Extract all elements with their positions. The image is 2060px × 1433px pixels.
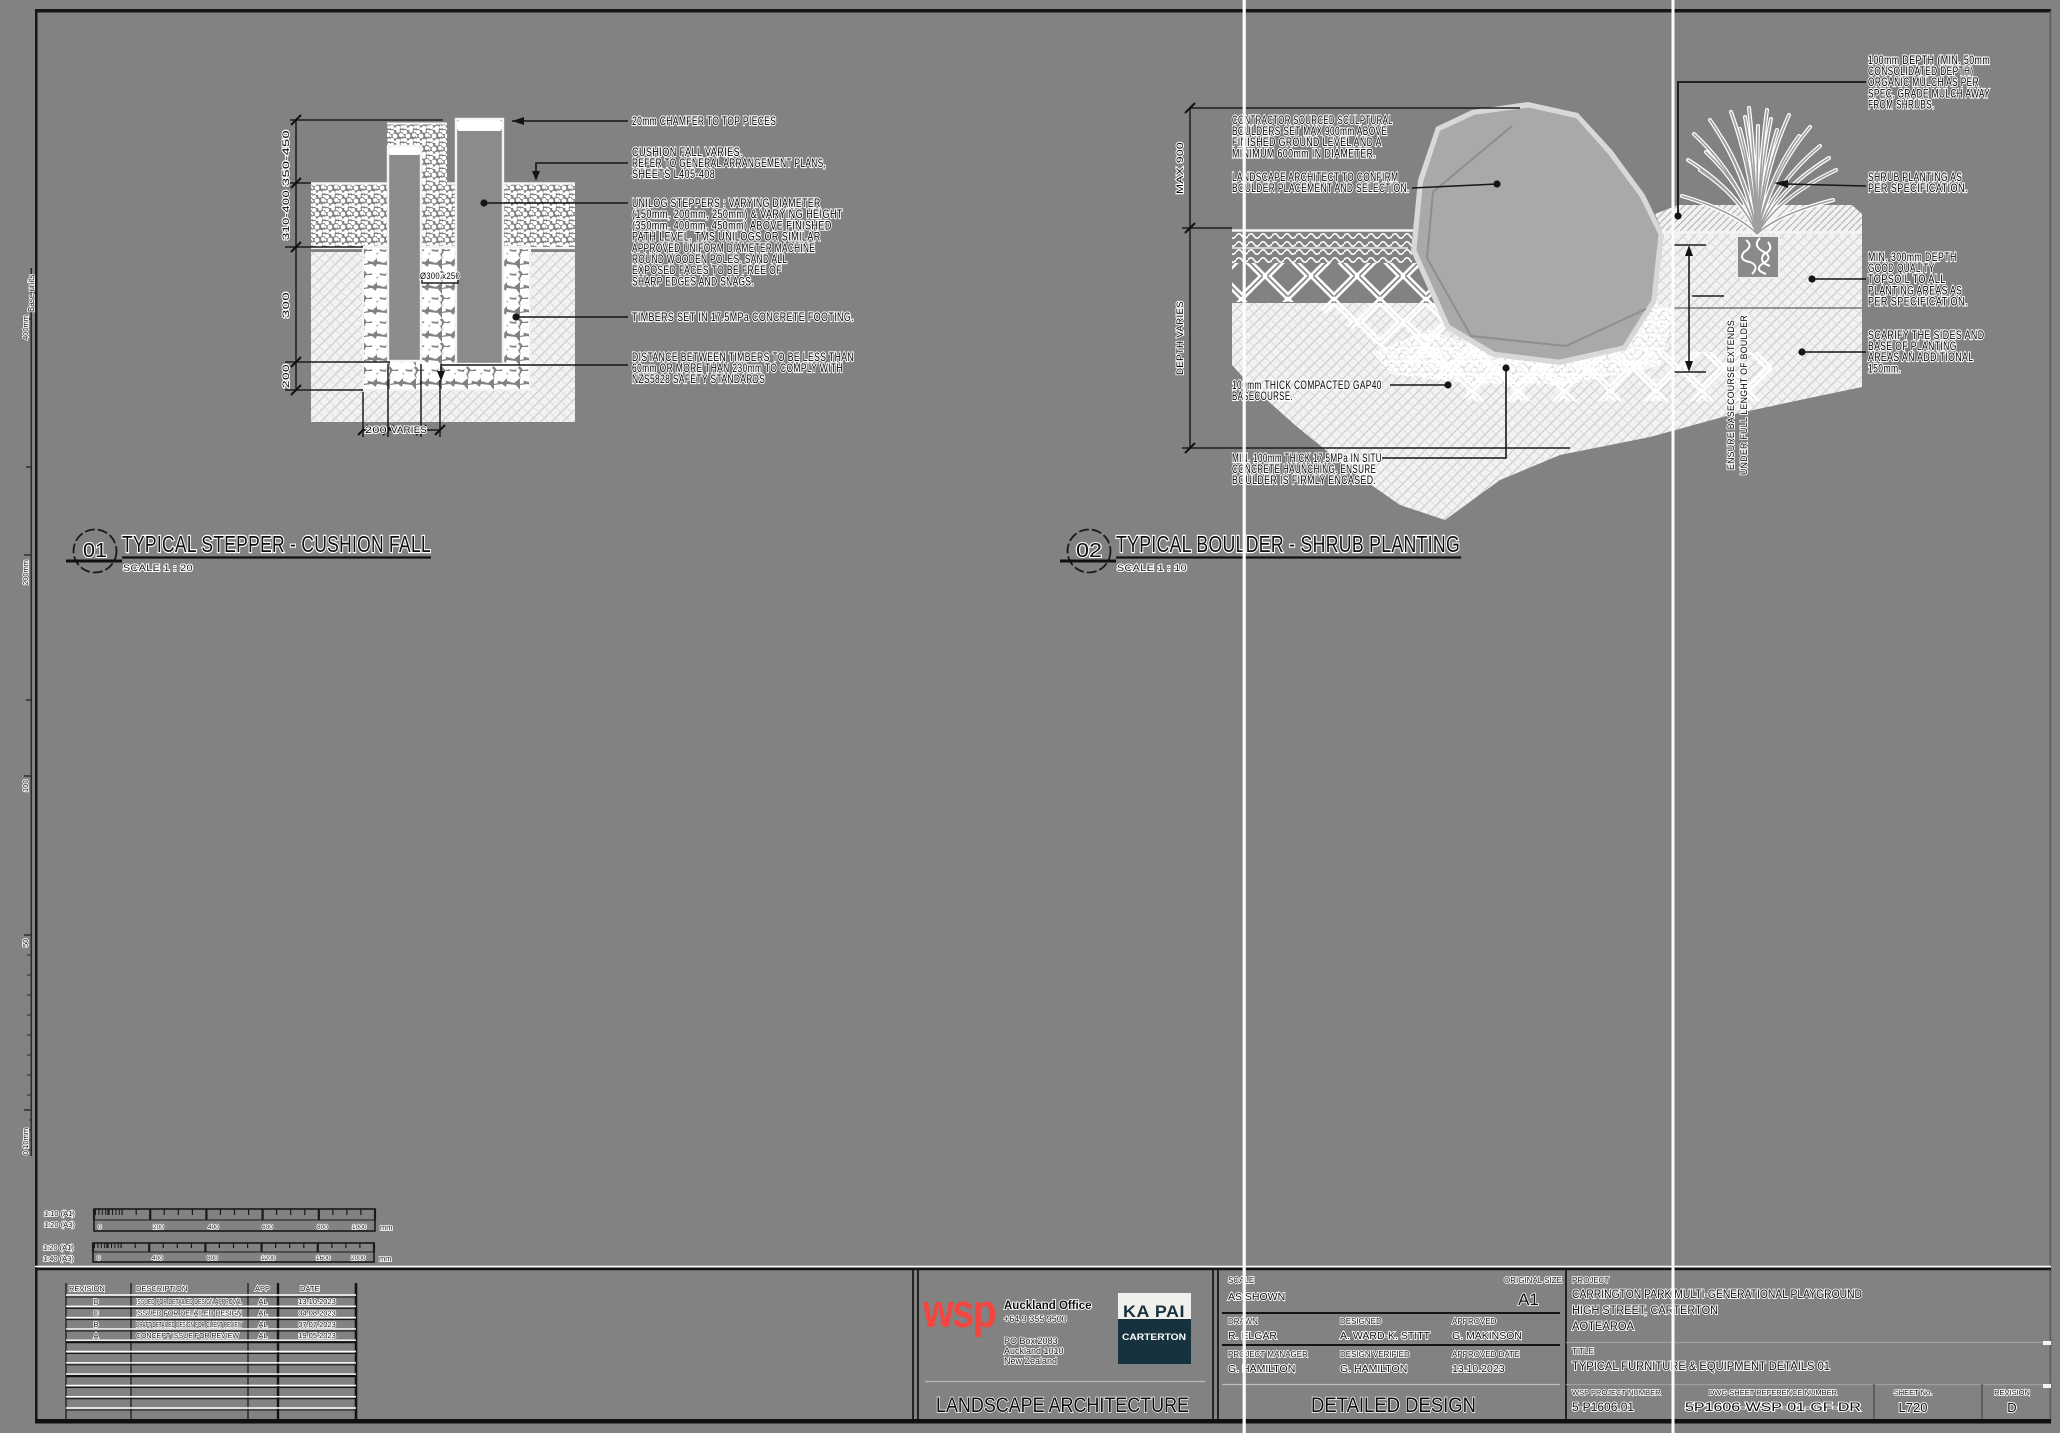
svg-text:MAX 900: MAX 900 <box>1175 142 1186 194</box>
svg-text:200: 200 <box>365 425 387 436</box>
svg-text:VARIES: VARIES <box>391 425 427 436</box>
svg-text:mm: mm <box>380 1223 393 1232</box>
svg-text:07.07.2023: 07.07.2023 <box>298 1320 336 1329</box>
svg-text:1:20 (A3): 1:20 (A3) <box>44 1220 75 1229</box>
svg-text:REVISION: REVISION <box>69 1284 105 1293</box>
svg-text:SCALE: SCALE <box>1228 1276 1254 1285</box>
svg-text:G. HAMILTON: G. HAMILTON <box>1340 1363 1407 1375</box>
svg-text:PROJECT: PROJECT <box>1572 1276 1609 1285</box>
svg-text:D: D <box>2007 1400 2016 1415</box>
svg-text:DEPTH VARIES: DEPTH VARIES <box>1175 301 1186 375</box>
svg-text:TYPICAL FURNITURE & EQUIPMENT: TYPICAL FURNITURE & EQUIPMENT DETAILS 01 <box>1572 1361 1830 1373</box>
svg-text:NZS5828 SAFETY STANDARDS: NZS5828 SAFETY STANDARDS <box>632 372 765 386</box>
svg-text:TIMBERS SET IN 17.5MPa CONCRET: TIMBERS SET IN 17.5MPa CONCRETE FOOTING. <box>632 310 854 324</box>
svg-text:0: 0 <box>98 1224 102 1231</box>
svg-text:mm: mm <box>379 1254 392 1263</box>
svg-text:50: 50 <box>21 939 30 947</box>
svg-text:300: 300 <box>281 292 292 318</box>
svg-text:SHEETS L405-408: SHEETS L405-408 <box>632 167 715 181</box>
svg-text:1000: 1000 <box>352 1224 367 1231</box>
svg-text:A: A <box>93 1331 98 1340</box>
svg-text:1:40 (A3): 1:40 (A3) <box>43 1254 74 1263</box>
svg-text:1:10 (A1): 1:10 (A1) <box>44 1209 75 1218</box>
svg-text:5-P1606.01: 5-P1606.01 <box>1572 1400 1634 1414</box>
svg-text:SCALE 1 : 20: SCALE 1 : 20 <box>123 563 193 574</box>
svg-text:SHEET No.: SHEET No. <box>1894 1388 1933 1397</box>
svg-text:0: 0 <box>97 1255 101 1262</box>
svg-text:200: 200 <box>153 1224 164 1231</box>
svg-text:A1: A1 <box>1518 1290 1539 1309</box>
svg-text:PO Box 2083: PO Box 2083 <box>1004 1336 1058 1346</box>
svg-text:AOTEAROA: AOTEAROA <box>1572 1321 1634 1333</box>
svg-text:G. HAMILTON: G. HAMILTON <box>1228 1363 1295 1375</box>
svg-text:DETAILED DESIGN: DETAILED DESIGN <box>1311 1394 1476 1417</box>
svg-text:CARTERTON: CARTERTON <box>1122 1332 1186 1343</box>
svg-text:G. MAKINSON: G. MAKINSON <box>1452 1330 1522 1342</box>
svg-text:ORIGINAL SIZE: ORIGINAL SIZE <box>1504 1276 1562 1285</box>
svg-text:400mm: 400mm <box>21 315 30 340</box>
svg-text:TYPICAL STEPPER - CUSHION FALL: TYPICAL STEPPER - CUSHION FALL <box>122 531 431 557</box>
svg-text:DESIGN VERIFIED: DESIGN VERIFIED <box>1340 1350 1410 1359</box>
svg-text:R. ELGAR: R. ELGAR <box>1228 1330 1277 1342</box>
svg-text:Ø300 x250: Ø300 x250 <box>420 271 460 282</box>
svg-text:AS SHOWN: AS SHOWN <box>1228 1291 1285 1303</box>
svg-text:DWG SHEET REFERENCE NUMBER: DWG SHEET REFERENCE NUMBER <box>1709 1388 1838 1397</box>
svg-text:BOULDER IS FIRMLY ENCASED.: BOULDER IS FIRMLY ENCASED. <box>1232 473 1376 487</box>
svg-text:1600: 1600 <box>316 1255 331 1262</box>
svg-text:AL: AL <box>258 1331 267 1340</box>
svg-text:AL: AL <box>258 1309 267 1318</box>
svg-text:BASECOURSE.: BASECOURSE. <box>1232 389 1293 403</box>
svg-text:DESIGNED: DESIGNED <box>1340 1317 1382 1326</box>
svg-text:800: 800 <box>207 1255 218 1262</box>
svg-text:UNDER FULL LENGHT OF BOULDER: UNDER FULL LENGHT OF BOULDER <box>1739 315 1750 475</box>
svg-text:SHARP EDGES AND SNAGS.: SHARP EDGES AND SNAGS. <box>632 274 754 288</box>
svg-text:KA PAI: KA PAI <box>1123 1302 1185 1321</box>
svg-text:AL: AL <box>258 1297 267 1306</box>
svg-text:800: 800 <box>317 1224 328 1231</box>
svg-text:200: 200 <box>281 364 292 388</box>
svg-text:Base units: Base units <box>27 275 36 312</box>
svg-text:PROJECT MANAGER: PROJECT MANAGER <box>1228 1350 1308 1359</box>
svg-text:CARRINGTON PARK MULTI-GENERATI: CARRINGTON PARK MULTI-GENERATIONAL PLAYG… <box>1572 1289 1862 1301</box>
svg-text:APP: APP <box>255 1284 270 1293</box>
svg-text:13.10.2023: 13.10.2023 <box>298 1297 336 1306</box>
svg-text:HIGH STREET, CARTERTON: HIGH STREET, CARTERTON <box>1572 1305 1718 1317</box>
svg-text:02: 02 <box>1076 540 1102 562</box>
svg-text:2000: 2000 <box>351 1255 366 1262</box>
svg-text:FROM SHRUBS.: FROM SHRUBS. <box>1868 97 1935 111</box>
svg-text:5P1606-WSP-01-GF-DR: 5P1606-WSP-01-GF-DR <box>1685 1400 1861 1414</box>
svg-text:20mm CHAMFER TO TOP PIECES: 20mm CHAMFER TO TOP PIECES <box>632 114 776 128</box>
svg-text:CONCEPT ISSUE FOR REVIEW: CONCEPT ISSUE FOR REVIEW <box>136 1331 240 1340</box>
svg-text:Auckland 1010: Auckland 1010 <box>1004 1346 1064 1356</box>
svg-text:+64 9 355 9500: +64 9 355 9500 <box>1004 1314 1067 1324</box>
svg-text:01: 01 <box>83 540 107 562</box>
svg-text:ENSURE BASECOURSE EXTENDS: ENSURE BASECOURSE EXTENDS <box>1726 320 1737 470</box>
svg-text:200mm: 200mm <box>21 560 30 585</box>
svg-text:PER SPECIFICATION.: PER SPECIFICATION. <box>1868 181 1968 195</box>
svg-text:APPROVED DATE: APPROVED DATE <box>1452 1350 1519 1359</box>
svg-text:Auckland Office: Auckland Office <box>1004 1300 1092 1312</box>
svg-text:REVISION: REVISION <box>1994 1388 2030 1397</box>
svg-text:150mm.: 150mm. <box>1868 361 1901 375</box>
svg-text:ISSUED FOR DETAILED DESIGN APP: ISSUED FOR DETAILED DESIGN APPROVAL <box>136 1297 242 1306</box>
svg-text:D: D <box>93 1297 99 1306</box>
svg-text:DATE: DATE <box>300 1284 319 1293</box>
svg-text:1:20 (A1): 1:20 (A1) <box>43 1243 74 1252</box>
svg-text:AL: AL <box>258 1320 267 1329</box>
svg-text:TYPICAL BOULDER - SHRUB PLANTI: TYPICAL BOULDER - SHRUB PLANTING <box>1116 531 1460 557</box>
svg-text:TITLE: TITLE <box>1572 1347 1594 1356</box>
svg-text:1200: 1200 <box>261 1255 276 1262</box>
svg-text:C: C <box>93 1309 99 1318</box>
svg-text:350-450: 350-450 <box>281 130 292 186</box>
svg-text:ISSUED FOR DETAILED DESIGN: ISSUED FOR DETAILED DESIGN <box>136 1309 242 1318</box>
svg-text:PER SPECIFICATION.: PER SPECIFICATION. <box>1868 294 1968 308</box>
svg-text:400: 400 <box>208 1224 219 1231</box>
svg-text:BOULDER PLACEMENT AND SELECTIO: BOULDER PLACEMENT AND SELECTION. <box>1232 181 1410 195</box>
svg-text:13.10.2023: 13.10.2023 <box>1452 1363 1505 1375</box>
svg-text:600: 600 <box>262 1224 273 1231</box>
svg-text:19.05.2023: 19.05.2023 <box>298 1331 336 1340</box>
svg-text:0 10mm: 0 10mm <box>21 1128 30 1155</box>
svg-text:APPROVED: APPROVED <box>1452 1317 1497 1326</box>
svg-text:B: B <box>93 1320 98 1329</box>
svg-text:SCALE 1 : 10: SCALE 1 : 10 <box>1117 563 1187 574</box>
svg-text:DESCRIPTION: DESCRIPTION <box>136 1284 187 1293</box>
svg-text:wsp: wsp <box>922 1284 995 1337</box>
svg-text:A. WARD-K. STITT: A. WARD-K. STITT <box>1340 1330 1431 1342</box>
svg-text:100: 100 <box>21 779 30 792</box>
svg-text:WSP PROJECT NUMBER: WSP PROJECT NUMBER <box>1572 1388 1661 1397</box>
svg-text:New Zealand: New Zealand <box>1004 1356 1057 1366</box>
svg-text:MINIMUM 600mm IN DIAMETER.: MINIMUM 600mm IN DIAMETER. <box>1232 146 1376 160</box>
svg-text:LANDSCAPE ARCHITECTURE: LANDSCAPE ARCHITECTURE <box>936 1394 1189 1417</box>
svg-text:400: 400 <box>152 1255 163 1262</box>
svg-text:L720: L720 <box>1899 1400 1928 1415</box>
svg-text:310-400: 310-400 <box>281 190 292 240</box>
svg-text:04.08.2023: 04.08.2023 <box>298 1309 336 1318</box>
svg-text:DRAFT DETAILED DESIGN FOR CLIE: DRAFT DETAILED DESIGN FOR CLIENT REVIEW <box>136 1320 243 1329</box>
